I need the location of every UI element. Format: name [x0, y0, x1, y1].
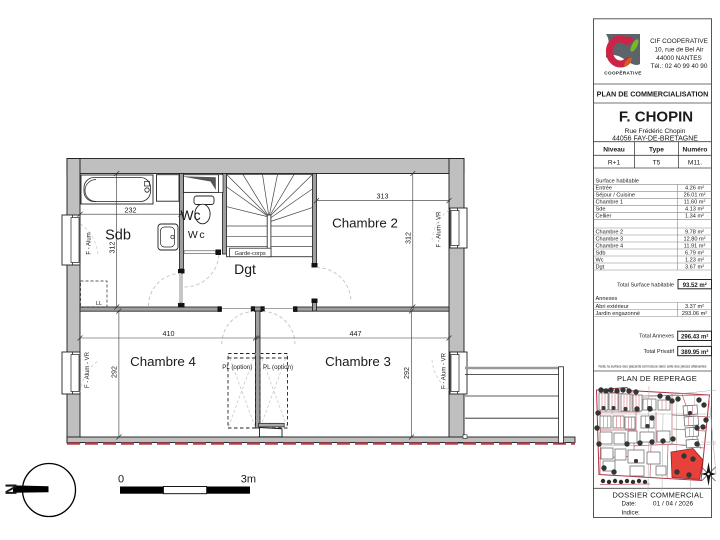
svg-text:3m: 3m — [241, 474, 256, 486]
svg-text:Dgt: Dgt — [234, 261, 256, 277]
svg-text:Chambre 3: Chambre 3 — [596, 236, 624, 242]
svg-text:Numéro: Numéro — [683, 147, 708, 154]
svg-text:Indice:: Indice: — [622, 509, 641, 516]
svg-text:1.23 m²: 1.23 m² — [685, 257, 704, 263]
svg-text:4.26 m²: 4.26 m² — [685, 186, 704, 192]
svg-text:Rue Frédéric Chopin: Rue Frédéric Chopin — [625, 128, 686, 135]
svg-text:PLAN DE REPERAGE: PLAN DE REPERAGE — [617, 374, 697, 383]
svg-text:410: 410 — [163, 329, 175, 338]
svg-text:Type: Type — [649, 147, 664, 154]
svg-text:0: 0 — [118, 474, 124, 486]
svg-text:Séjour / Cuisine: Séjour / Cuisine — [596, 193, 636, 199]
svg-text:M11.: M11. — [688, 159, 702, 166]
svg-text:Chambre 4: Chambre 4 — [130, 354, 196, 369]
svg-text:Chambre 4: Chambre 4 — [596, 243, 624, 249]
svg-text:F. CHOPIN: F. CHOPIN — [619, 109, 693, 126]
svg-text:Sdb: Sdb — [105, 228, 131, 244]
svg-text:F - Alum - VR: F - Alum - VR — [437, 211, 443, 248]
svg-text:Wc: Wc — [180, 207, 200, 223]
svg-text:T5: T5 — [653, 159, 661, 166]
svg-text:Chambre 3: Chambre 3 — [325, 354, 391, 369]
svg-text:389.95 m²: 389.95 m² — [681, 349, 708, 356]
svg-text:Jardin engazonné: Jardin engazonné — [596, 311, 640, 317]
svg-text:Abri extérieur: Abri extérieur — [596, 304, 629, 310]
svg-text:1.34 m²: 1.34 m² — [685, 214, 704, 220]
svg-text:DOSSIER COMMERCIAL: DOSSIER COMMERCIAL — [612, 491, 703, 500]
svg-text:93.52 m²: 93.52 m² — [683, 282, 707, 289]
svg-text:447: 447 — [350, 329, 362, 338]
svg-text:COOPÉRATIVE: COOPÉRATIVE — [604, 69, 642, 76]
svg-text:313: 313 — [377, 192, 389, 201]
svg-text:F - Alum: F - Alum — [87, 232, 93, 254]
svg-text:01 / 04 / 2026: 01 / 04 / 2026 — [653, 500, 694, 507]
svg-text:Sde: Sde — [596, 207, 606, 213]
svg-text:Wc: Wc — [596, 257, 604, 263]
svg-text:Dgt: Dgt — [596, 264, 605, 270]
svg-text:Total Privatif: Total Privatif — [644, 349, 675, 355]
svg-text:292: 292 — [110, 366, 119, 378]
svg-text:4.13 m²: 4.13 m² — [685, 207, 704, 213]
svg-text:PL (option): PL (option) — [222, 364, 252, 371]
svg-text:Garde-corps: Garde-corps — [235, 251, 266, 257]
svg-text:232: 232 — [125, 205, 137, 214]
svg-text:F - Alum - VR: F - Alum - VR — [85, 351, 91, 388]
svg-text:Chambre 1: Chambre 1 — [596, 200, 624, 206]
svg-text:Entrée: Entrée — [596, 186, 612, 192]
svg-text:Wc: Wc — [188, 229, 206, 241]
svg-text:LL: LL — [96, 301, 102, 307]
svg-text:12.80 m²: 12.80 m² — [683, 236, 705, 242]
svg-text:26.01 m²: 26.01 m² — [683, 193, 705, 199]
svg-text:3.67 m²: 3.67 m² — [685, 264, 704, 270]
svg-text:Sdb: Sdb — [596, 250, 606, 256]
svg-text:Nota: la surface des placards: Nota: la surface des placards est inclus… — [599, 364, 707, 368]
svg-text:R+1: R+1 — [608, 159, 621, 166]
svg-text:F - Alum - VR: F - Alum - VR — [442, 352, 448, 389]
svg-text:11.60 m²: 11.60 m² — [684, 200, 706, 206]
svg-text:Date:: Date: — [622, 500, 637, 507]
svg-text:Cellier: Cellier — [596, 214, 612, 220]
svg-text:Chambre 2: Chambre 2 — [596, 229, 624, 235]
svg-text:PLAN DE COMMERCIALISATION: PLAN DE COMMERCIALISATION — [597, 90, 709, 99]
svg-text:PL (option): PL (option) — [263, 364, 293, 371]
svg-text:3.37 m²: 3.37 m² — [685, 304, 704, 310]
svg-text:Annexes: Annexes — [596, 296, 618, 302]
svg-text:296.43 m²: 296.43 m² — [681, 334, 708, 341]
svg-text:11.91 m²: 11.91 m² — [684, 243, 706, 249]
svg-text:44056 FAY-DE-BRETAGNE: 44056 FAY-DE-BRETAGNE — [612, 136, 698, 143]
svg-text:Niveau: Niveau — [603, 147, 625, 154]
svg-text:Chambre 2: Chambre 2 — [332, 216, 398, 231]
svg-text:Total Annexes: Total Annexes — [639, 334, 674, 340]
svg-text:6.79 m²: 6.79 m² — [685, 250, 704, 256]
svg-text:292: 292 — [402, 367, 411, 379]
svg-text:312: 312 — [403, 232, 412, 244]
svg-text:N: N — [4, 483, 21, 495]
svg-text:Surface habitable: Surface habitable — [596, 179, 640, 185]
svg-text:293.06 m²: 293.06 m² — [682, 311, 707, 317]
svg-text:9.78 m²: 9.78 m² — [685, 229, 704, 235]
svg-text:Total Surface habitable: Total Surface habitable — [617, 282, 674, 288]
svg-text:CIF COOPERATIVE10, rue de Bel: CIF COOPERATIVE10, rue de Bel Air44000 N… — [650, 38, 708, 70]
